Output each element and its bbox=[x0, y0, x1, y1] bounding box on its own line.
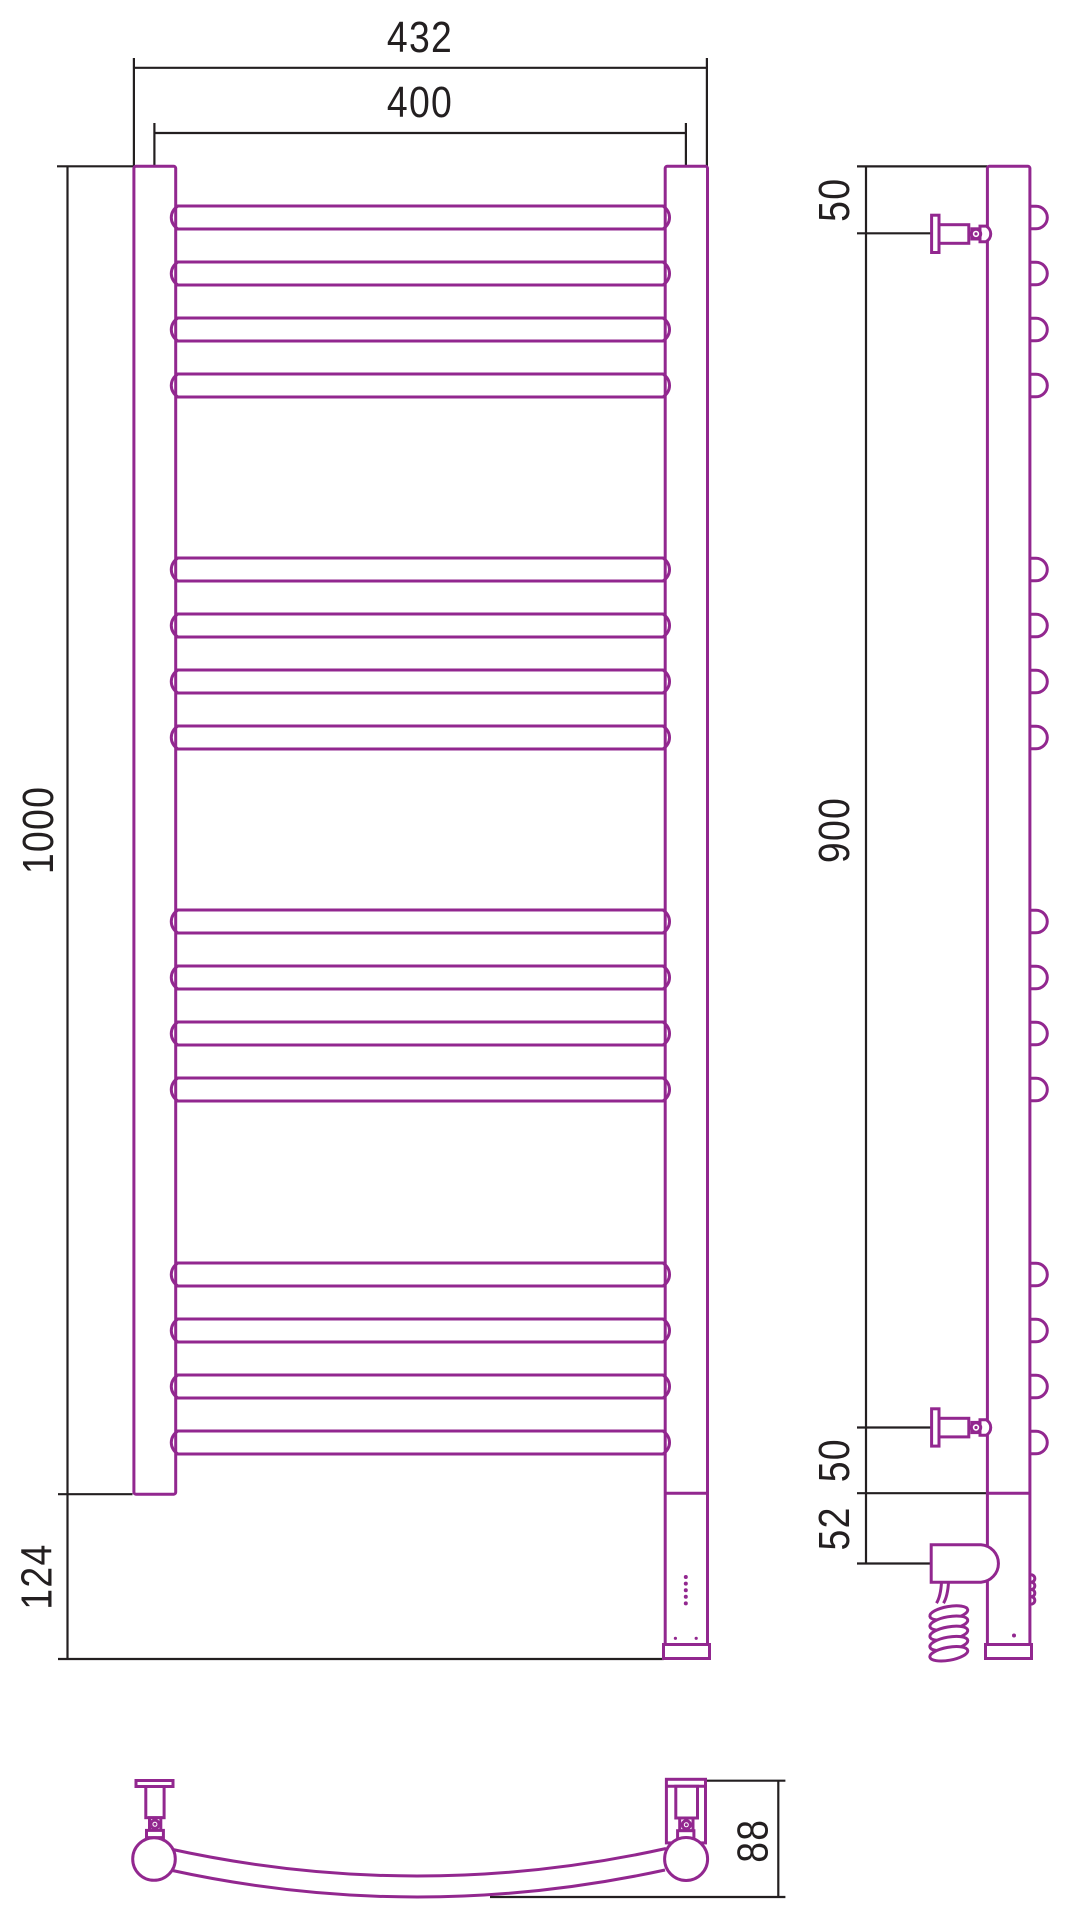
svg-text:50: 50 bbox=[809, 1438, 859, 1482]
svg-text:124: 124 bbox=[12, 1543, 62, 1609]
svg-text:1000: 1000 bbox=[13, 786, 63, 874]
svg-text:52: 52 bbox=[809, 1506, 859, 1550]
svg-text:432: 432 bbox=[387, 12, 453, 62]
svg-text:50: 50 bbox=[809, 178, 859, 222]
svg-text:88: 88 bbox=[728, 1819, 778, 1863]
svg-text:400: 400 bbox=[387, 77, 453, 127]
svg-text:900: 900 bbox=[809, 797, 859, 863]
